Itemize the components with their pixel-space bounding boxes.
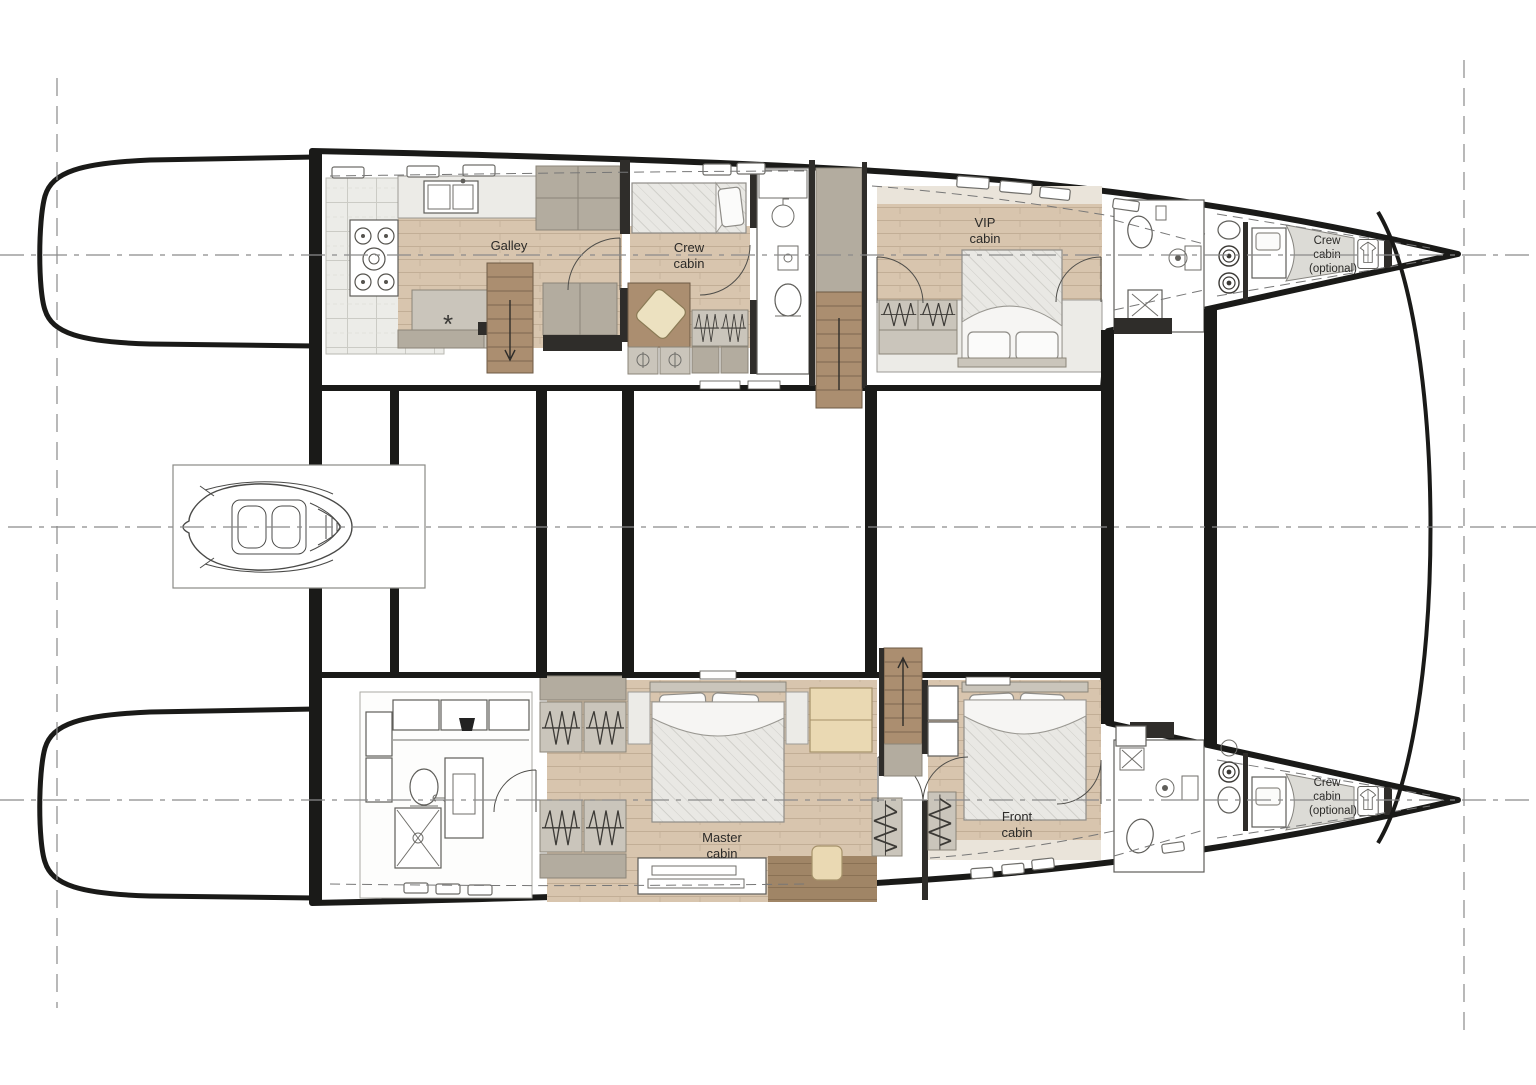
hull-windows-port <box>700 381 780 389</box>
vip-label-2: cabin <box>969 231 1000 246</box>
front-label-1: Front <box>1002 809 1033 824</box>
hanging-shirt-icon-port <box>1358 240 1378 269</box>
bow-crew-stbd-label-1: Crew <box>1314 777 1342 789</box>
port-hull: * Galley <box>40 151 1458 408</box>
crew-vip-wall <box>809 160 815 386</box>
crew-bath-wall-lower <box>750 300 757 374</box>
front-label-2: cabin <box>1001 825 1032 840</box>
galley: * Galley <box>326 160 630 373</box>
vip-double-bed-icon <box>958 250 1066 367</box>
galley-crew-wall-upper <box>620 160 630 234</box>
bow-divider-port <box>1243 222 1248 300</box>
bow-crew-port-label-1: Crew <box>1314 235 1342 247</box>
master-label-1: Master <box>702 830 742 845</box>
front-double-bed-icon <box>962 682 1088 820</box>
washer-icon-stbd <box>1219 762 1239 782</box>
vip-bath-dark-floor <box>1114 318 1172 334</box>
bow-crew-stbd-label-2: cabin <box>1313 791 1341 803</box>
bow-crew-stbd-label-3: (optional) <box>1309 805 1357 817</box>
master-label-2: cabin <box>706 846 737 861</box>
crew-cabin-label-2: cabin <box>673 256 704 271</box>
galley-label: Galley <box>491 238 528 253</box>
front-bathroom <box>1114 722 1204 872</box>
galley-lower-cabinet <box>398 330 484 348</box>
galley-staircase <box>487 263 533 373</box>
floor-plan-canvas: * Galley <box>0 0 1536 1085</box>
hanging-shirt-icon-stbd <box>1358 787 1378 816</box>
vip-wardrobe <box>879 300 957 354</box>
master-shower-icon <box>395 808 441 868</box>
floor-plan-page: * Galley <box>0 0 1536 1085</box>
master-wardrobe-stairside <box>872 798 902 856</box>
starboard-hull: Master cabin <box>40 648 1458 903</box>
beam-3 <box>536 386 547 678</box>
nightstand-left <box>628 692 650 744</box>
bow-crew-port-label-3: (optional) <box>1309 263 1357 275</box>
vip-label-1: VIP <box>975 215 996 230</box>
master-console <box>638 858 766 894</box>
nightstand-right <box>786 692 808 744</box>
crew-cabin: Crew cabin <box>628 160 815 386</box>
bow-divider-stbd <box>1243 753 1248 831</box>
beam-4 <box>622 386 634 678</box>
crew-sofa <box>628 283 690 347</box>
single-bed-icon <box>632 183 746 233</box>
master-bathroom <box>360 692 536 898</box>
stove-icon <box>350 220 398 296</box>
port-transom-platform <box>40 157 315 346</box>
vip-shower-icon <box>1128 290 1162 320</box>
crew-bathroom <box>757 168 809 374</box>
stbd-transom-platform <box>40 709 315 898</box>
master-ottoman <box>812 846 842 880</box>
galley-aft-step <box>543 335 622 351</box>
crew-cabin-label-1: Crew <box>674 240 705 255</box>
beam-5 <box>865 386 877 678</box>
toilet-icon <box>775 284 801 316</box>
port-deck-staircase <box>816 162 867 408</box>
washer-icon-port-2 <box>1219 273 1239 293</box>
vip-bathroom <box>1114 200 1204 334</box>
washer-icon-port-1 <box>1219 246 1239 266</box>
master-double-bed-icon <box>628 682 808 822</box>
master-cabin: Master cabin <box>540 676 923 902</box>
